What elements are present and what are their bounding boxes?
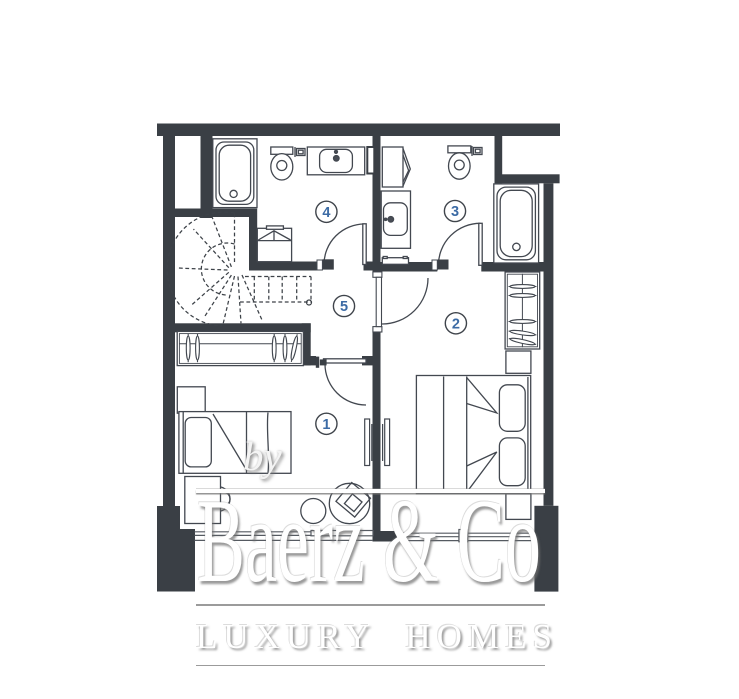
- svg-text:3: 3: [451, 204, 459, 220]
- svg-text:1: 1: [322, 417, 330, 433]
- svg-text:5: 5: [340, 299, 348, 315]
- svg-text:2: 2: [452, 317, 460, 333]
- svg-text:4: 4: [322, 205, 330, 221]
